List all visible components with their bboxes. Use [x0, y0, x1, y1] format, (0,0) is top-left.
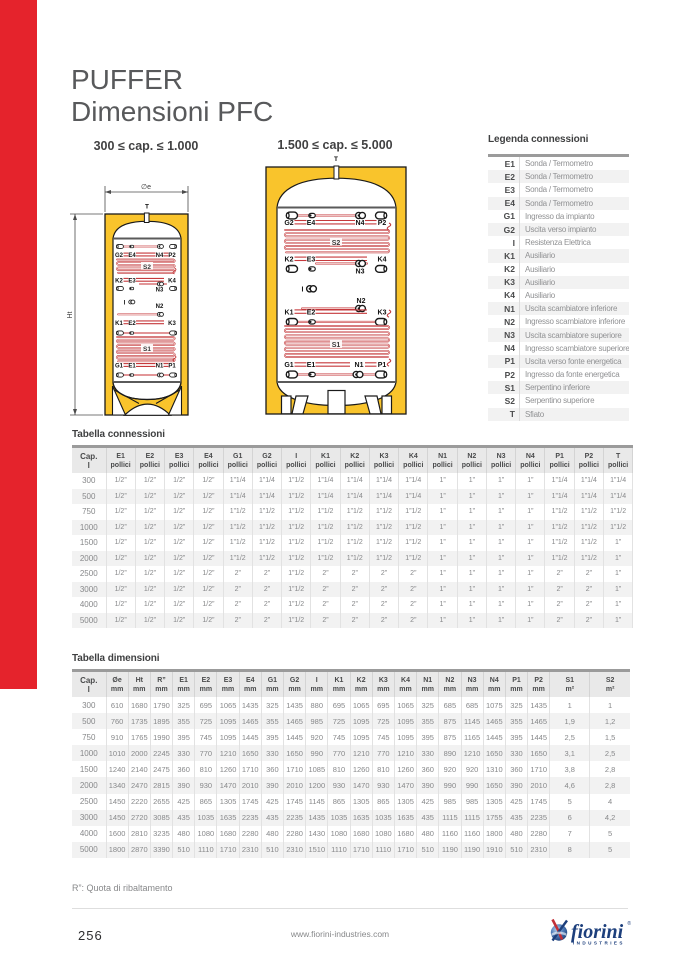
svg-text:N3: N3 [356, 269, 365, 276]
svg-text:K1: K1 [285, 309, 294, 316]
svg-text:INDUSTRIES: INDUSTRIES [573, 941, 625, 946]
svg-text:G1: G1 [115, 364, 124, 370]
svg-text:S1: S1 [143, 346, 151, 353]
svg-text:N4: N4 [356, 220, 365, 227]
svg-text:K3: K3 [378, 309, 387, 316]
svg-text:∅e: ∅e [141, 184, 151, 191]
svg-text:E1: E1 [307, 362, 316, 369]
svg-text:®: ® [627, 920, 631, 927]
svg-text:Ht: Ht [67, 311, 74, 318]
svg-text:E2: E2 [307, 309, 316, 316]
svg-text:G2: G2 [284, 220, 293, 227]
svg-text:E2: E2 [128, 321, 136, 327]
svg-text:T: T [145, 204, 149, 211]
svg-text:P1: P1 [168, 364, 176, 370]
svg-text:E4: E4 [307, 220, 316, 227]
svg-text:N4: N4 [156, 253, 164, 259]
svg-text:N1: N1 [355, 362, 364, 369]
svg-text:E3: E3 [128, 279, 136, 285]
svg-text:P1: P1 [378, 362, 387, 369]
svg-text:N3: N3 [156, 288, 164, 294]
svg-text:K4: K4 [378, 257, 387, 264]
svg-text:G1: G1 [284, 362, 293, 369]
svg-text:K1: K1 [115, 321, 123, 327]
svg-text:S2: S2 [143, 264, 151, 271]
svg-text:K4: K4 [168, 279, 176, 285]
svg-text:E1: E1 [128, 364, 136, 370]
svg-text:S2: S2 [332, 240, 341, 247]
svg-text:K3: K3 [168, 321, 176, 327]
svg-text:N1: N1 [156, 364, 164, 370]
svg-text:P2: P2 [378, 220, 387, 227]
svg-text:T: T [334, 156, 338, 163]
svg-text:G2: G2 [115, 253, 124, 259]
svg-text:E3: E3 [307, 257, 316, 264]
svg-text:K2: K2 [285, 257, 294, 264]
svg-text:N2: N2 [357, 298, 366, 305]
svg-text:N2: N2 [156, 304, 164, 310]
svg-text:E4: E4 [128, 253, 136, 259]
svg-text:S1: S1 [332, 342, 341, 349]
svg-text:P2: P2 [168, 253, 176, 259]
svg-text:K2: K2 [115, 279, 123, 285]
svg-text:I: I [302, 287, 304, 294]
